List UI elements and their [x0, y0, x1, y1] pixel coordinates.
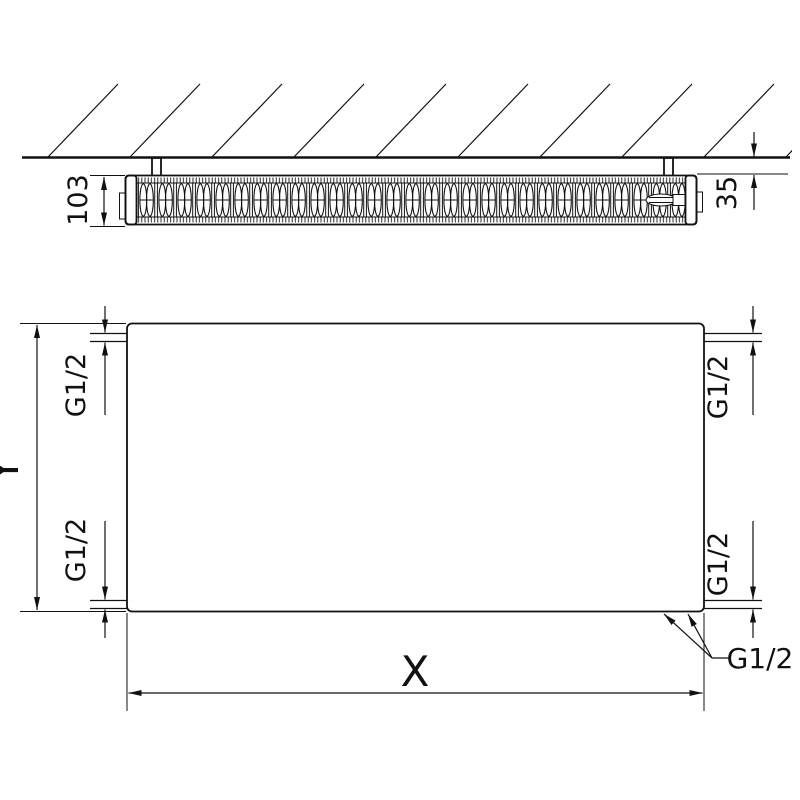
valve-body — [646, 194, 676, 206]
wall-distance-label: 35 — [712, 176, 743, 210]
valve-insert — [646, 194, 685, 206]
hatch-line — [540, 84, 610, 157]
height-dimension-label: Y — [0, 457, 28, 484]
port-label-bottom-right: G1/2 — [703, 532, 734, 596]
width-dimension-label: X — [401, 647, 430, 696]
dimension-port-top-right: G1/2 — [703, 306, 753, 419]
port-label-top-left: G1/2 — [61, 353, 92, 417]
hatch-line — [786, 84, 800, 157]
leader-arrow — [664, 614, 712, 658]
wall-bracket-left — [152, 158, 161, 176]
leader-arrow — [688, 614, 712, 658]
dimension-width-x: X — [127, 613, 704, 711]
dimension-port-bottom-right: G1/2 — [703, 521, 753, 638]
dimension-port-bottom-left: G1/2 — [61, 518, 105, 638]
hatch-line — [212, 84, 282, 157]
hatch-line — [294, 84, 364, 157]
dimension-port-top-left: G1/2 — [61, 306, 105, 417]
hatch-line — [622, 84, 692, 157]
dimension-depth-103: 103 — [63, 174, 125, 226]
hatch-line — [48, 84, 118, 157]
wall-bracket-right — [664, 158, 673, 176]
dimension-wall-distance-35: 35 — [697, 132, 788, 210]
convector-comb-bottom — [137, 217, 685, 223]
convector-fins — [137, 183, 685, 217]
radiator-dimension-drawing: 103 35 G1/2 G1/2 — [0, 0, 800, 800]
depth-dimension-label: 103 — [63, 174, 94, 226]
port-label-bottom-leader: G1/2 — [727, 642, 794, 675]
hatch-line — [130, 84, 200, 157]
hatch-line — [704, 84, 774, 157]
radiator-top-view — [120, 176, 703, 225]
port-label-top-right: G1/2 — [703, 355, 734, 419]
drawing-canvas: 103 35 G1/2 G1/2 — [0, 0, 800, 800]
hatch-line — [376, 84, 446, 157]
front-view: G1/2 G1/2 G1/2 G1/2 Y X — [0, 306, 793, 711]
top-view: 103 35 — [22, 84, 800, 227]
hatch-line — [458, 84, 528, 157]
port-label-bottom-left: G1/2 — [61, 518, 92, 582]
convector-comb-top — [137, 178, 685, 184]
valve-block — [673, 195, 685, 206]
wall-section — [48, 84, 800, 157]
radiator-front-panel — [127, 324, 704, 612]
bottom-ports-leader: G1/2 — [664, 614, 793, 675]
